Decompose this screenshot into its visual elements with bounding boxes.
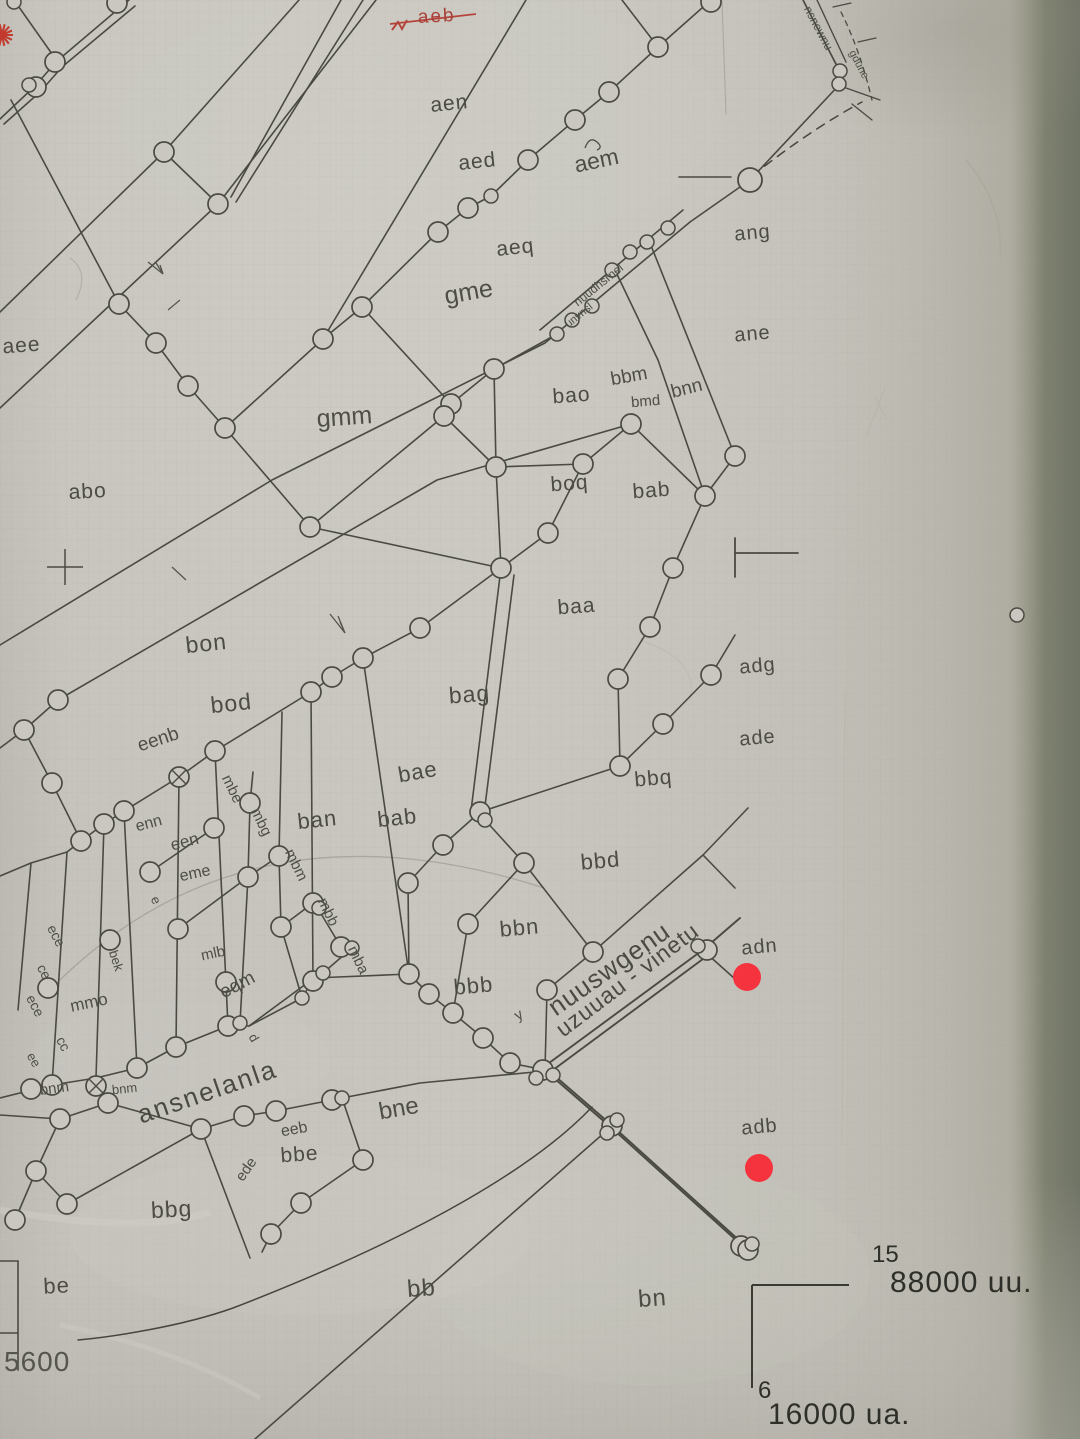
svg-text:adg: adg [738, 653, 776, 678]
svg-text:ban: ban [296, 805, 338, 834]
svg-text:bmd: bmd [630, 392, 661, 411]
svg-text:abo: abo [68, 479, 107, 504]
svg-text:boq: boq [550, 471, 590, 497]
svg-text:gmm: gmm [316, 401, 373, 433]
svg-text:aed: aed [457, 148, 497, 175]
svg-text:adn: adn [740, 934, 778, 959]
svg-text:bbb: bbb [452, 971, 494, 999]
svg-text:aee: aee [2, 333, 42, 359]
svg-text:aeb: aeb [417, 5, 456, 28]
svg-text:15: 15 [872, 1241, 899, 1268]
svg-text:bab: bab [632, 478, 672, 504]
svg-text:bb: bb [406, 1274, 437, 1303]
svg-text:bab: bab [376, 803, 418, 832]
svg-text:bbg: bbg [150, 1195, 193, 1223]
svg-text:be: be [43, 1272, 71, 1298]
svg-text:5600: 5600 [4, 1346, 70, 1377]
svg-text:bbe: bbe [280, 1142, 320, 1168]
svg-text:bbn: bbn [498, 913, 540, 941]
svg-text:aeq: aeq [495, 234, 535, 261]
svg-text:bao: bao [552, 383, 592, 409]
svg-text:bon: bon [184, 628, 228, 658]
svg-text:bn: bn [637, 1284, 668, 1313]
svg-text:ang: ang [733, 220, 771, 245]
svg-text:88000 uu.: 88000 uu. [890, 1266, 1032, 1299]
svg-text:bod: bod [209, 688, 253, 718]
svg-text:adb: adb [740, 1114, 778, 1139]
svg-text:ade: ade [738, 725, 776, 750]
svg-text:bag: bag [448, 680, 491, 709]
svg-text:bnm: bnm [111, 1080, 138, 1098]
svg-text:16000 ua.: 16000 ua. [768, 1398, 910, 1431]
svg-text:bbq: bbq [633, 765, 673, 791]
svg-text:ane: ane [733, 321, 771, 346]
svg-text:baa: baa [557, 594, 597, 620]
svg-text:bbd: bbd [579, 846, 621, 874]
svg-text:aen: aen [429, 90, 469, 117]
